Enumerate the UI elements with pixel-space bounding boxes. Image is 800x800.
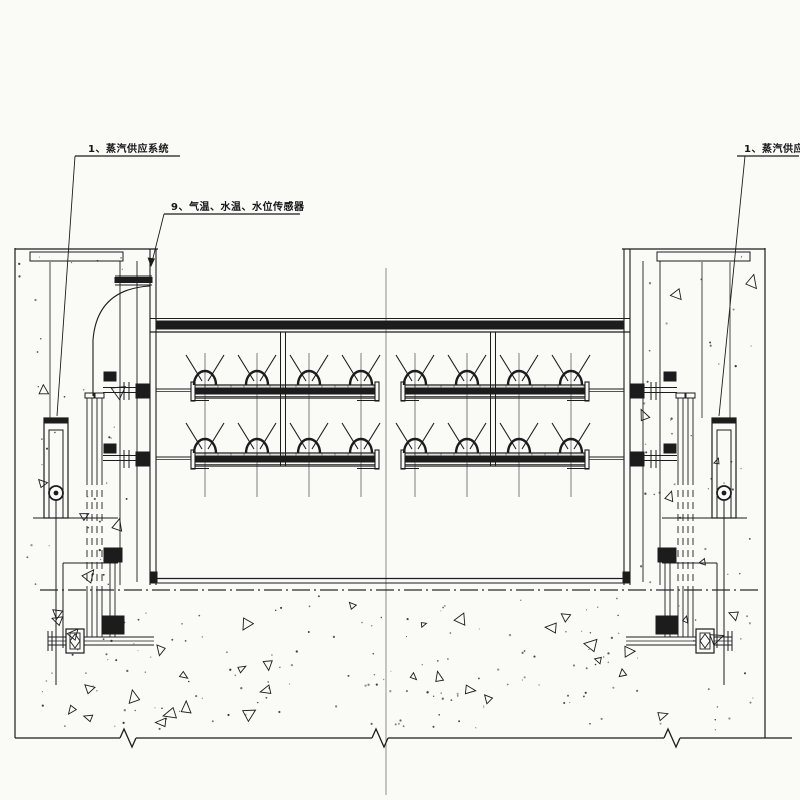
spray-pipe-row — [186, 423, 380, 469]
callout-steam-supply-left: 1、蒸汽供应系统 — [88, 140, 169, 155]
sensor-callout-leader — [152, 214, 164, 262]
wall-bolt-row2 — [103, 444, 195, 468]
gate-bottom-edge — [156, 579, 624, 584]
callout-leaders — [57, 156, 799, 416]
spray-assembly-right — [396, 332, 590, 497]
steam-header-pipe — [150, 319, 630, 333]
drawing-sheet: 1、蒸汽供应系统 9、气温、水温、水位传感器 1、蒸汽供应系统 — [0, 0, 800, 800]
left-callout-leader — [57, 156, 75, 416]
pillar-valve-assembly — [48, 548, 154, 653]
sensor-leader-arrowhead — [148, 258, 156, 268]
left-flange-elbow — [93, 276, 152, 396]
foundation-line — [15, 729, 792, 747]
right-callout-leader — [719, 156, 745, 416]
drawing-canvas — [0, 0, 800, 800]
spray-assembly-left — [186, 332, 380, 497]
spray-pipe-row — [186, 355, 380, 401]
callout-steam-supply-right: 1、蒸汽供应系统 — [744, 140, 800, 155]
callout-sensors: 9、气温、水温、水位传感器 — [171, 198, 304, 213]
